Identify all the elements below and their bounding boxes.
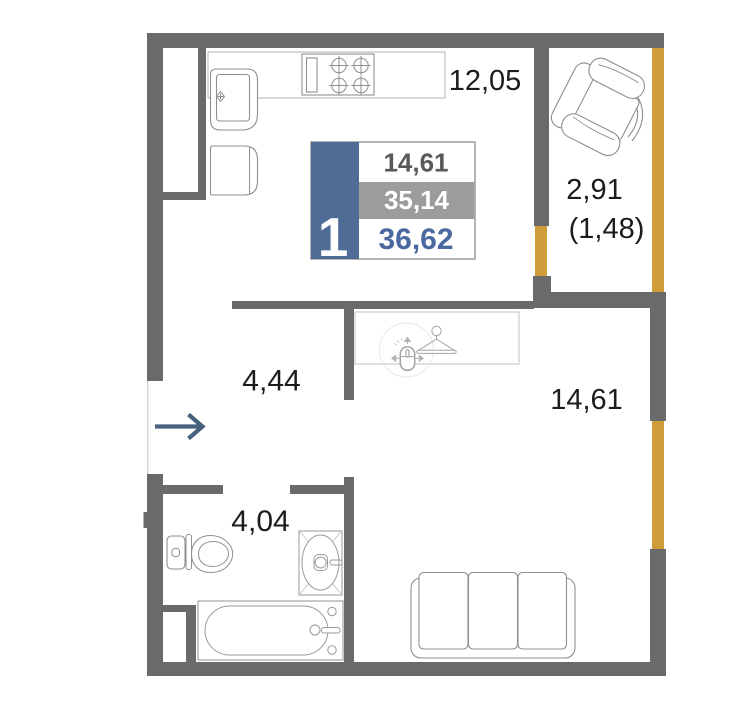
svg-text:4,44: 4,44	[242, 365, 300, 398]
svg-text:14,61: 14,61	[550, 384, 623, 416]
svg-text:4,04: 4,04	[231, 505, 289, 538]
svg-text:2,91: 2,91	[566, 174, 622, 206]
svg-text:(1,48): (1,48)	[569, 213, 645, 245]
svg-text:12,05: 12,05	[449, 65, 522, 97]
svg-text:36,62: 36,62	[378, 223, 453, 256]
svg-text:35,14: 35,14	[384, 185, 450, 215]
svg-text:14,61: 14,61	[383, 148, 448, 178]
svg-text:1: 1	[318, 206, 349, 268]
